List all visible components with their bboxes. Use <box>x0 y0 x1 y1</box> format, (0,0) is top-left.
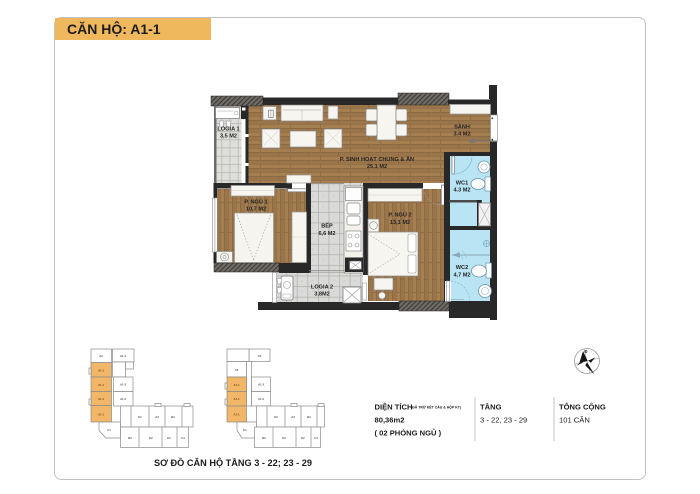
svg-text:E1: E1 <box>243 428 247 432</box>
svg-text:C6: C6 <box>235 368 239 372</box>
svg-text:3 - 22, 23 - 29: 3 - 22, 23 - 29 <box>480 416 527 425</box>
svg-text:A1-1: A1-1 <box>233 397 240 401</box>
svg-text:(ĐÃ TRỪ KẾT CẤU & HỘP KT): (ĐÃ TRỪ KẾT CẤU & HỘP KT) <box>411 405 461 410</box>
svg-text:3,5 M2: 3,5 M2 <box>220 134 237 140</box>
svg-text:TỔNG CỘNG: TỔNG CỘNG <box>559 403 606 412</box>
svg-text:P. NGỦ 2: P. NGỦ 2 <box>388 212 411 219</box>
svg-text:C4: C4 <box>314 436 318 440</box>
svg-text:A1-4: A1-4 <box>120 354 127 358</box>
svg-text:A1-1: A1-1 <box>98 397 105 401</box>
svg-text:C5: C5 <box>258 354 262 358</box>
svg-text:SẢNH: SẢNH <box>454 124 470 131</box>
svg-text:A1-1: A1-1 <box>233 413 240 417</box>
svg-text:A1-3: A1-3 <box>258 383 265 387</box>
svg-text:A1-1: A1-1 <box>98 369 105 373</box>
svg-text:A2: A2 <box>99 354 103 358</box>
svg-text:A1-1: A1-1 <box>98 383 105 387</box>
svg-text:E2: E2 <box>149 436 153 440</box>
svg-text:25.1 M2: 25.1 M2 <box>367 164 387 170</box>
svg-text:4.3 M2: 4.3 M2 <box>453 188 470 194</box>
svg-text:( 02 PHÒNG NGỦ ): ( 02 PHÒNG NGỦ ) <box>375 429 442 438</box>
svg-text:E1: E1 <box>138 415 142 419</box>
svg-text:CĂN HỘ: A1-1: CĂN HỘ: A1-1 <box>67 20 161 37</box>
svg-text:80,36m2: 80,36m2 <box>375 416 405 425</box>
svg-text:LOGIA 2: LOGIA 2 <box>311 285 333 291</box>
svg-text:B1: B1 <box>307 415 311 419</box>
svg-text:13,1 M2: 13,1 M2 <box>390 220 410 226</box>
svg-text:101 CĂN: 101 CĂN <box>559 416 590 425</box>
svg-text:C1: C1 <box>107 428 111 432</box>
svg-text:B1: B1 <box>171 415 175 419</box>
svg-text:E3: E3 <box>274 415 278 419</box>
svg-text:A3: A3 <box>155 415 159 419</box>
svg-text:6,6 M2: 6,6 M2 <box>318 231 335 237</box>
svg-text:P. SINH HOẠT CHUNG & ĂN: P. SINH HOẠT CHUNG & ĂN <box>340 156 414 163</box>
svg-text:A1-1: A1-1 <box>233 383 240 387</box>
svg-text:3,8M2: 3,8M2 <box>314 292 330 298</box>
svg-text:E2: E2 <box>301 436 305 440</box>
svg-text:A3: A3 <box>291 415 295 419</box>
svg-text:DIỆN TÍCH: DIỆN TÍCH <box>375 403 413 412</box>
svg-text:10,7 M2: 10,7 M2 <box>246 207 266 213</box>
svg-text:B2: B2 <box>262 436 266 440</box>
svg-text:E2: E2 <box>282 436 286 440</box>
svg-text:SƠ ĐỒ CĂN HỘ TẦNG 3 - 22; 23 -: SƠ ĐỒ CĂN HỘ TẦNG 3 - 22; 23 - 29 <box>154 457 312 468</box>
svg-text:Đ: Đ <box>585 349 588 354</box>
svg-text:P. NGỦ 1: P. NGỦ 1 <box>244 199 267 206</box>
svg-text:C4: C4 <box>181 436 185 440</box>
svg-text:A1-3: A1-3 <box>120 383 127 387</box>
svg-text:WC2: WC2 <box>456 265 468 271</box>
svg-text:A1-2: A1-2 <box>258 397 265 401</box>
svg-text:LOGIA 1: LOGIA 1 <box>217 127 239 133</box>
svg-text:E2: E2 <box>167 436 171 440</box>
svg-text:B2: B2 <box>128 436 132 440</box>
svg-text:4,7 M2: 4,7 M2 <box>453 273 470 279</box>
svg-text:WC1: WC1 <box>456 181 468 187</box>
svg-text:BẾP: BẾP <box>321 223 333 230</box>
svg-text:3.4 M2: 3.4 M2 <box>453 132 470 138</box>
svg-text:TẦNG: TẦNG <box>480 402 502 412</box>
svg-text:A1-1: A1-1 <box>98 413 105 417</box>
svg-text:A1-2: A1-2 <box>120 397 127 401</box>
